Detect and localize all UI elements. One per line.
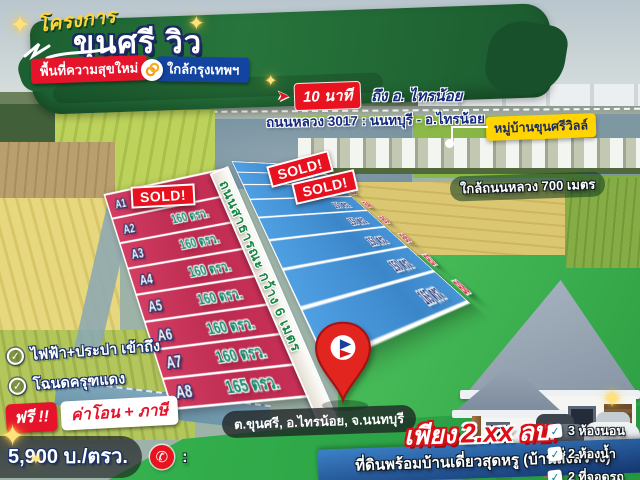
- house-feature-item: ✓2 ห้องน้ำ: [548, 444, 625, 464]
- poster: A1A2160 ตรว.A3160 ตรว.A4160 ตรว.A5160 ตร…: [0, 0, 640, 480]
- house-feature-list: ✓3 ห้องนอน✓2 ห้องน้ำ✓2 ที่จอดรถ: [548, 421, 625, 480]
- village-pointer-dot: [445, 139, 454, 148]
- offer-only-label: เพียง: [403, 415, 456, 457]
- photo-village-houses: [298, 138, 640, 174]
- tagline-red-badge: พื้นที่ความสุขใหม่: [31, 55, 148, 84]
- house-feature-item: ✓2 ที่จอดรถ: [548, 467, 625, 480]
- route-arrow-icon: ➤: [277, 87, 290, 105]
- house-feature-label: 2 ที่จอดรถ: [568, 467, 624, 480]
- checkbox-icon: ✓: [547, 423, 562, 438]
- sparkle-icon: ✦: [0, 422, 25, 452]
- plot-size: 150 ตรว.: [346, 217, 372, 228]
- village-badge: หมู่บ้านขุนศรีวิลล์: [486, 113, 597, 141]
- plot-size: 165 ตรว.: [415, 285, 451, 310]
- route-time-badge: 10 นาที: [294, 81, 362, 111]
- house-feature-label: 3 ห้องนอน: [568, 421, 625, 441]
- sold-stamp: SOLD!: [130, 183, 195, 208]
- phone-icon: ✆: [150, 445, 174, 469]
- check-circle-icon: ✓: [8, 377, 26, 395]
- tagline-row: พื้นที่ความสุขใหม่ ใกล้กรุงเทพฯ: [31, 57, 249, 82]
- checkbox-icon: ✓: [547, 446, 562, 461]
- route-destination: ถึง อ. ไทรน้อย: [371, 84, 462, 108]
- offer-price: เพียง 2.xx ลบ.: [403, 411, 557, 456]
- house-feature-label: 2 ห้องน้ำ: [568, 444, 616, 464]
- offer-amount: 2.xx: [460, 417, 514, 450]
- village-pointer-line: [452, 126, 488, 128]
- feature-checklist: ✓ไฟฟ้า+ประปา เข้าถึง✓โฉนดครุฑแดง: [6, 335, 163, 406]
- tagline-blue-badge: ใกล้กรุงเทพฯ: [157, 56, 250, 83]
- price-row: 5,900 บ./ตรว. ✆ :: [0, 436, 188, 478]
- phone-separator: :: [182, 447, 188, 467]
- checkbox-icon: ✓: [547, 469, 562, 480]
- feature-item: ✓โฉนดครุฑแดง: [8, 365, 163, 399]
- chain-link-icon: [141, 59, 163, 81]
- plot-size: 150 ตรว.: [364, 235, 393, 249]
- plot-size: 150 ตรว.: [387, 257, 419, 275]
- check-circle-icon: ✓: [6, 347, 24, 365]
- house-roof: [466, 280, 638, 394]
- sparkle-icon: ✦: [188, 14, 205, 34]
- house-feature-item: ✓3 ห้องนอน: [548, 421, 625, 441]
- sparkle-icon: ✦: [602, 388, 622, 412]
- sparkle-icon: ✦: [264, 74, 277, 90]
- sparkle-icon: ✦: [10, 14, 30, 38]
- free-items: ค่าโอน + ภาษี: [60, 396, 178, 431]
- feature-label: โฉนดครุฑแดง: [32, 367, 126, 396]
- sparkle-icon: ✦: [30, 452, 42, 466]
- plot-size: 150 ตรว.: [331, 202, 354, 210]
